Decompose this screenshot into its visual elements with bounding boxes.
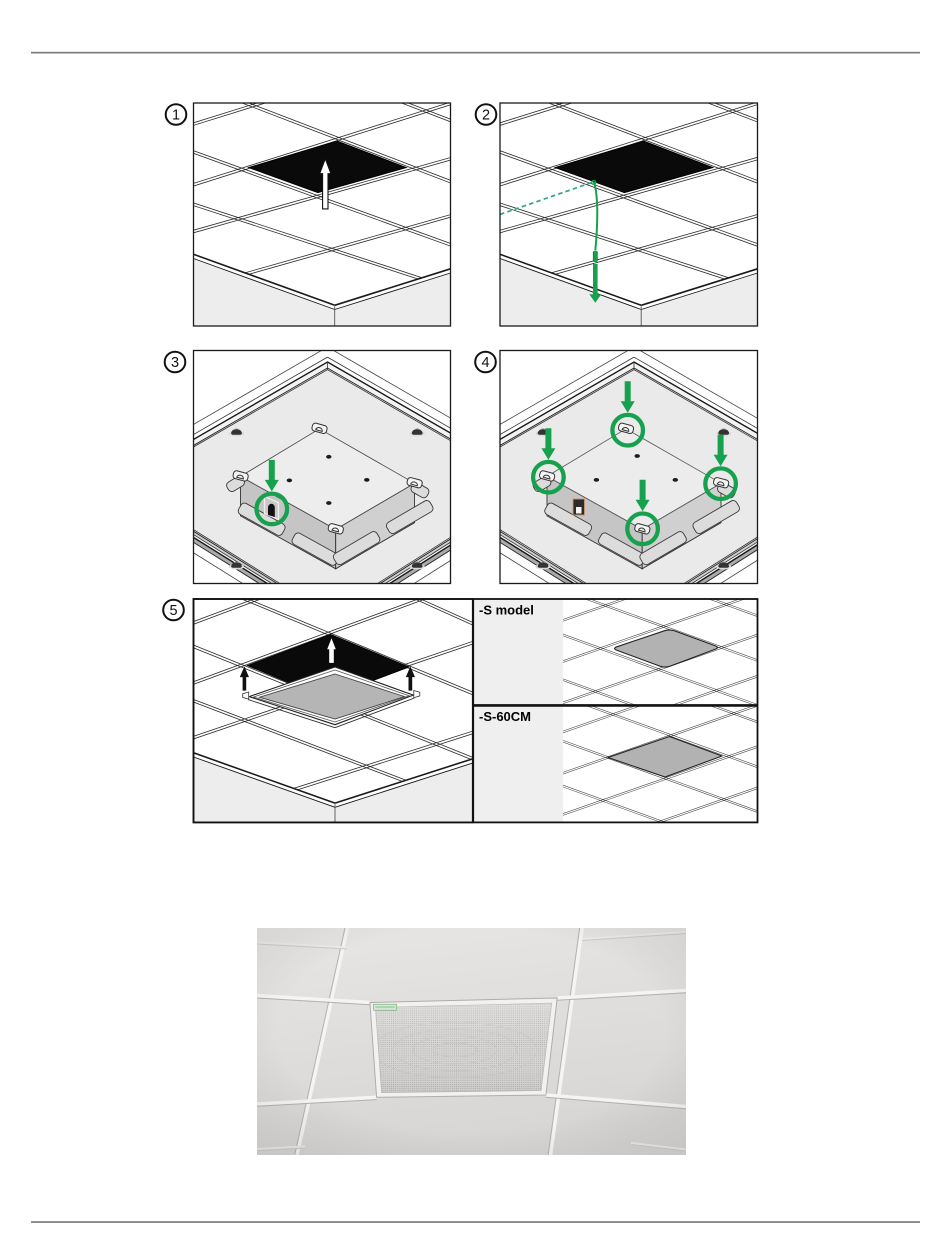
- svg-text:5: 5: [169, 603, 177, 619]
- svg-text:-S-60CM: -S-60CM: [479, 709, 531, 724]
- svg-text:1: 1: [172, 108, 180, 124]
- svg-text:-S model: -S model: [479, 603, 534, 618]
- svg-text:2: 2: [482, 108, 490, 124]
- svg-text:3: 3: [171, 355, 179, 371]
- svg-text:4: 4: [481, 355, 489, 371]
